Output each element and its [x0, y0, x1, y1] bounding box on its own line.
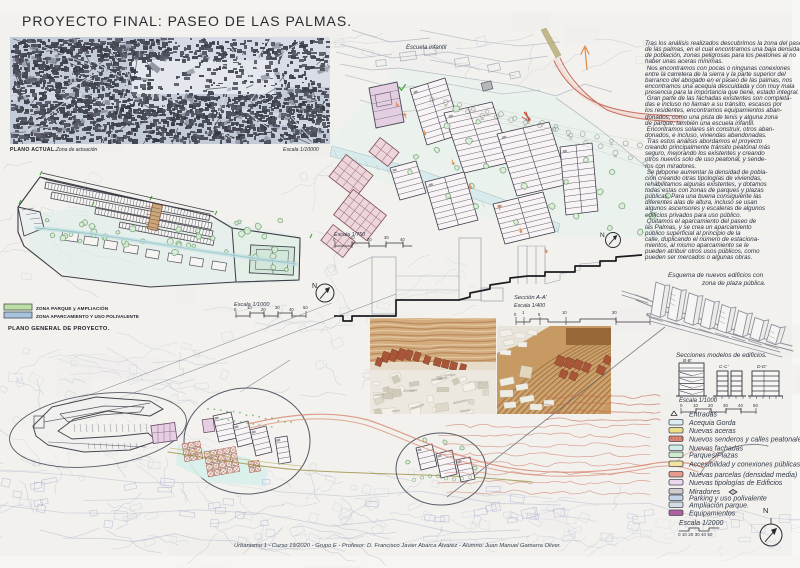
svg-text:PROYECTO FINAL: PASEO DE LAS P: PROYECTO FINAL: PASEO DE LAS PALMAS. — [22, 13, 352, 29]
svg-text:Accesibilidad y conexiones púb: Accesibilidad y conexiones públicas — [688, 462, 800, 469]
svg-text:20: 20 — [708, 403, 713, 408]
svg-text:ZONA PARQUE y AMPLIACIÓN: ZONA PARQUE y AMPLIACIÓN — [36, 304, 109, 311]
svg-text:30: 30 — [612, 310, 617, 315]
svg-text:Nuevas parcelas (densidad medi: Nuevas parcelas (densidad media) — [689, 472, 797, 479]
svg-text:30: 30 — [275, 305, 280, 310]
svg-text:10: 10 — [693, 403, 698, 408]
svg-text:Sección A-A': Sección A-A' — [514, 295, 548, 301]
svg-text:30: 30 — [723, 403, 728, 408]
svg-text:Escuela infantil: Escuela infantil — [406, 45, 447, 51]
svg-text:Nuevos senderos y calles peato: Nuevos senderos y calles peatonales — [689, 437, 800, 444]
svg-text:Ampliación parque.: Ampliación parque. — [688, 503, 749, 510]
svg-text:Escala 1/400: Escala 1/400 — [514, 303, 545, 309]
svg-text:20: 20 — [367, 237, 372, 242]
svg-text:N: N — [600, 232, 605, 239]
svg-text:0 10 20 30 40 50: 0 10 20 30 40 50 — [678, 532, 713, 537]
svg-text:10: 10 — [562, 310, 567, 315]
svg-text:Zona de actuación: Zona de actuación — [55, 147, 97, 153]
svg-text:PLANO GENERAL DE PROYECTO.: PLANO GENERAL DE PROYECTO. — [8, 326, 110, 332]
svg-text:Nuevas aceras: Nuevas aceras — [689, 428, 736, 435]
svg-text:40: 40 — [289, 307, 294, 312]
svg-text:50: 50 — [753, 403, 758, 408]
svg-text:Escala 1/2000: Escala 1/2000 — [679, 520, 723, 527]
svg-text:C-C': C-C' — [719, 364, 730, 370]
svg-text:10: 10 — [350, 235, 355, 240]
svg-text:ZONA APARCAMIENTO Y USO POLIVA: ZONA APARCAMIENTO Y USO POLIVALENTE — [36, 314, 139, 319]
svg-text:Escala 1/10000: Escala 1/10000 — [283, 147, 319, 153]
svg-text:D-D': D-D' — [757, 364, 768, 370]
svg-text:PLANO ACTUAL.: PLANO ACTUAL. — [10, 147, 56, 153]
svg-text:Esquema de nuevos edificios co: Esquema de nuevos edificios con — [668, 272, 764, 279]
svg-text:Urbanismo 1 - Curso 19/2020 -: Urbanismo 1 - Curso 19/2020 - Grupo E - … — [234, 542, 561, 549]
svg-text:Entradas: Entradas — [689, 412, 718, 419]
svg-text:Equipamientos: Equipamientos — [689, 511, 736, 518]
svg-text:Nuevas fachadas: Nuevas fachadas — [689, 446, 744, 453]
svg-text:20: 20 — [261, 307, 266, 312]
svg-text:Parking y uso polivalente: Parking y uso polivalente — [689, 496, 767, 503]
svg-text:40: 40 — [738, 403, 743, 408]
svg-text:B-B': B-B' — [683, 358, 692, 363]
svg-text:N: N — [312, 283, 317, 290]
svg-text:30: 30 — [384, 235, 389, 240]
svg-text:10: 10 — [247, 305, 252, 310]
svg-text:zona de plaza pública.: zona de plaza pública. — [701, 280, 766, 287]
svg-text:Nuevas tipologías de Edificios: Nuevas tipologías de Edificios — [689, 480, 783, 487]
svg-text:40: 40 — [400, 237, 405, 242]
svg-text:50: 50 — [303, 305, 308, 310]
svg-text:Parques/Plazas: Parques/Plazas — [689, 453, 739, 460]
svg-text:Acequia Gorda: Acequia Gorda — [688, 420, 736, 427]
svg-text:N: N — [763, 506, 768, 515]
